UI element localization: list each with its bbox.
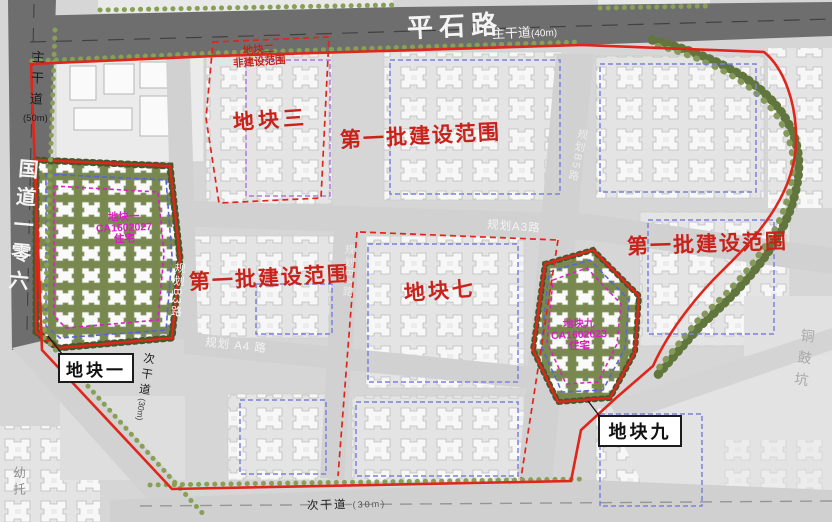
site-plan-canvas (0, 0, 832, 522)
secondary-name: 次干道 (307, 499, 348, 512)
road-width-text: (40m) (531, 28, 558, 40)
road-label-pingshi: 平石路 (406, 11, 503, 42)
road-type-text: 主干道 (492, 25, 532, 42)
label-plot2-note: 地块二 非建设范围 (223, 43, 294, 71)
secondary-width: (30m) (353, 499, 387, 510)
road-label-left-type: 主干道 (27, 50, 44, 119)
road-label-pingshi-type: 主干道(40m) (492, 25, 558, 42)
plot1-label-box: 地块一 (58, 353, 134, 383)
plot-one-render (36, 160, 180, 348)
road-label-left-width: (50m) (23, 114, 48, 124)
plot1-tag-use: 住宅 (93, 233, 155, 246)
plot1-tag: 地块一 CA1602027 住宅 (92, 211, 155, 246)
site-plan-map: 平石路 主干道(40m) 主干道 (50m) 国道一零六 地块二 非建设范围 地… (0, 0, 832, 522)
secondary-left-width: (30m) (135, 398, 148, 421)
label-kindergarten: 幼托 (11, 466, 24, 510)
plot9-tag: 地块九 CA1602023 住宅 (543, 318, 614, 353)
plot9-label-box: 地块九 (598, 415, 682, 447)
